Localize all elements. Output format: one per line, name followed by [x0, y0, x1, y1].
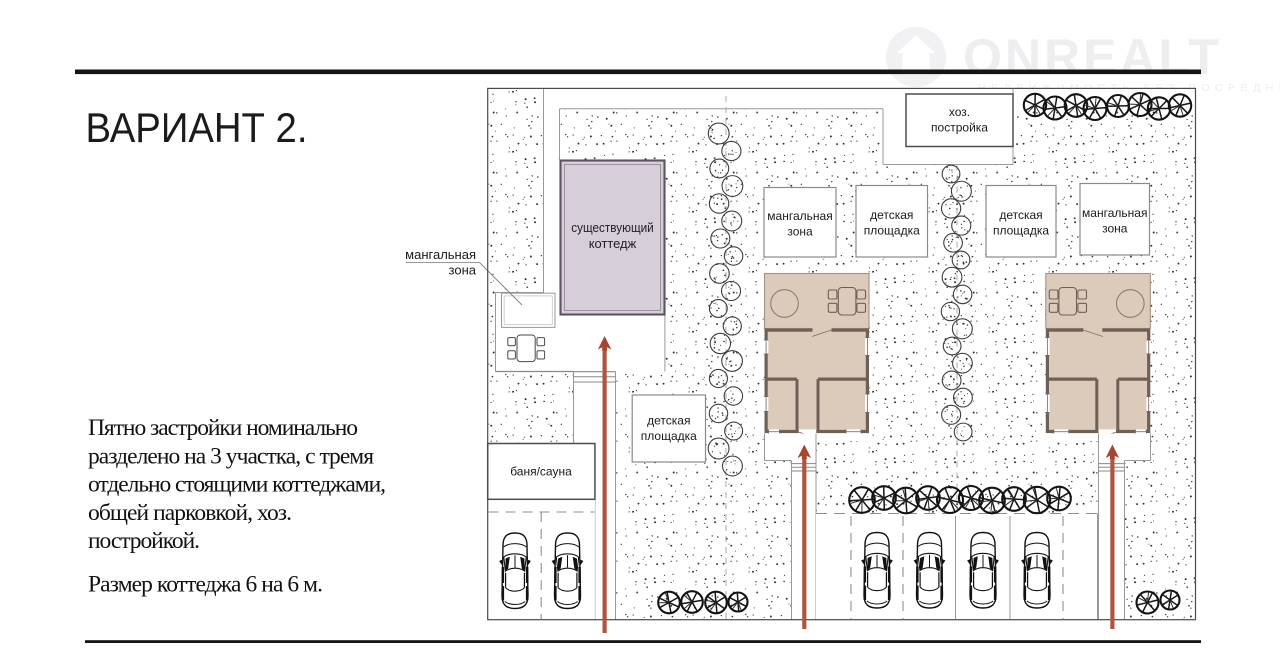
- svg-text:существующий: существующий: [571, 221, 654, 235]
- svg-text:площадка: площадка: [641, 429, 697, 443]
- svg-text:зона: зона: [1102, 222, 1128, 236]
- svg-text:отдельно стоящими коттеджами,: отдельно стоящими коттеджами,: [88, 472, 386, 498]
- svg-text:ВАРИАНТ 2.: ВАРИАНТ 2.: [86, 104, 308, 151]
- svg-text:мангальная: мангальная: [1082, 206, 1147, 220]
- svg-text:постройкой.: постройкой.: [88, 528, 200, 554]
- svg-text:Пятно застройки номинально: Пятно застройки номинально: [88, 415, 358, 441]
- svg-text:детская: детская: [870, 208, 913, 222]
- svg-text:ONREALT: ONREALT: [963, 29, 1222, 85]
- svg-text:разделено на 3 участка, с трем: разделено на 3 участка, с тремя: [88, 443, 374, 469]
- svg-text:зона: зона: [449, 263, 477, 278]
- svg-text:баня/сауна: баня/сауна: [510, 465, 572, 479]
- svg-text:общей парковкой, хоз.: общей парковкой, хоз.: [88, 500, 292, 526]
- svg-text:зона: зона: [787, 225, 813, 239]
- svg-text:Размер коттеджа 6 на 6 м.: Размер коттеджа 6 на 6 м.: [88, 572, 323, 598]
- svg-text:постройка: постройка: [931, 121, 988, 135]
- svg-text:мангальная: мангальная: [405, 247, 476, 262]
- svg-text:детская: детская: [999, 208, 1042, 222]
- svg-text:хоз.: хоз.: [949, 105, 970, 119]
- svg-text:площадка: площадка: [993, 224, 1049, 238]
- svg-text:мангальная: мангальная: [767, 209, 832, 223]
- svg-text:площадка: площадка: [864, 224, 920, 238]
- svg-text:детская: детская: [647, 414, 690, 428]
- svg-text:коттедж: коттедж: [589, 237, 637, 251]
